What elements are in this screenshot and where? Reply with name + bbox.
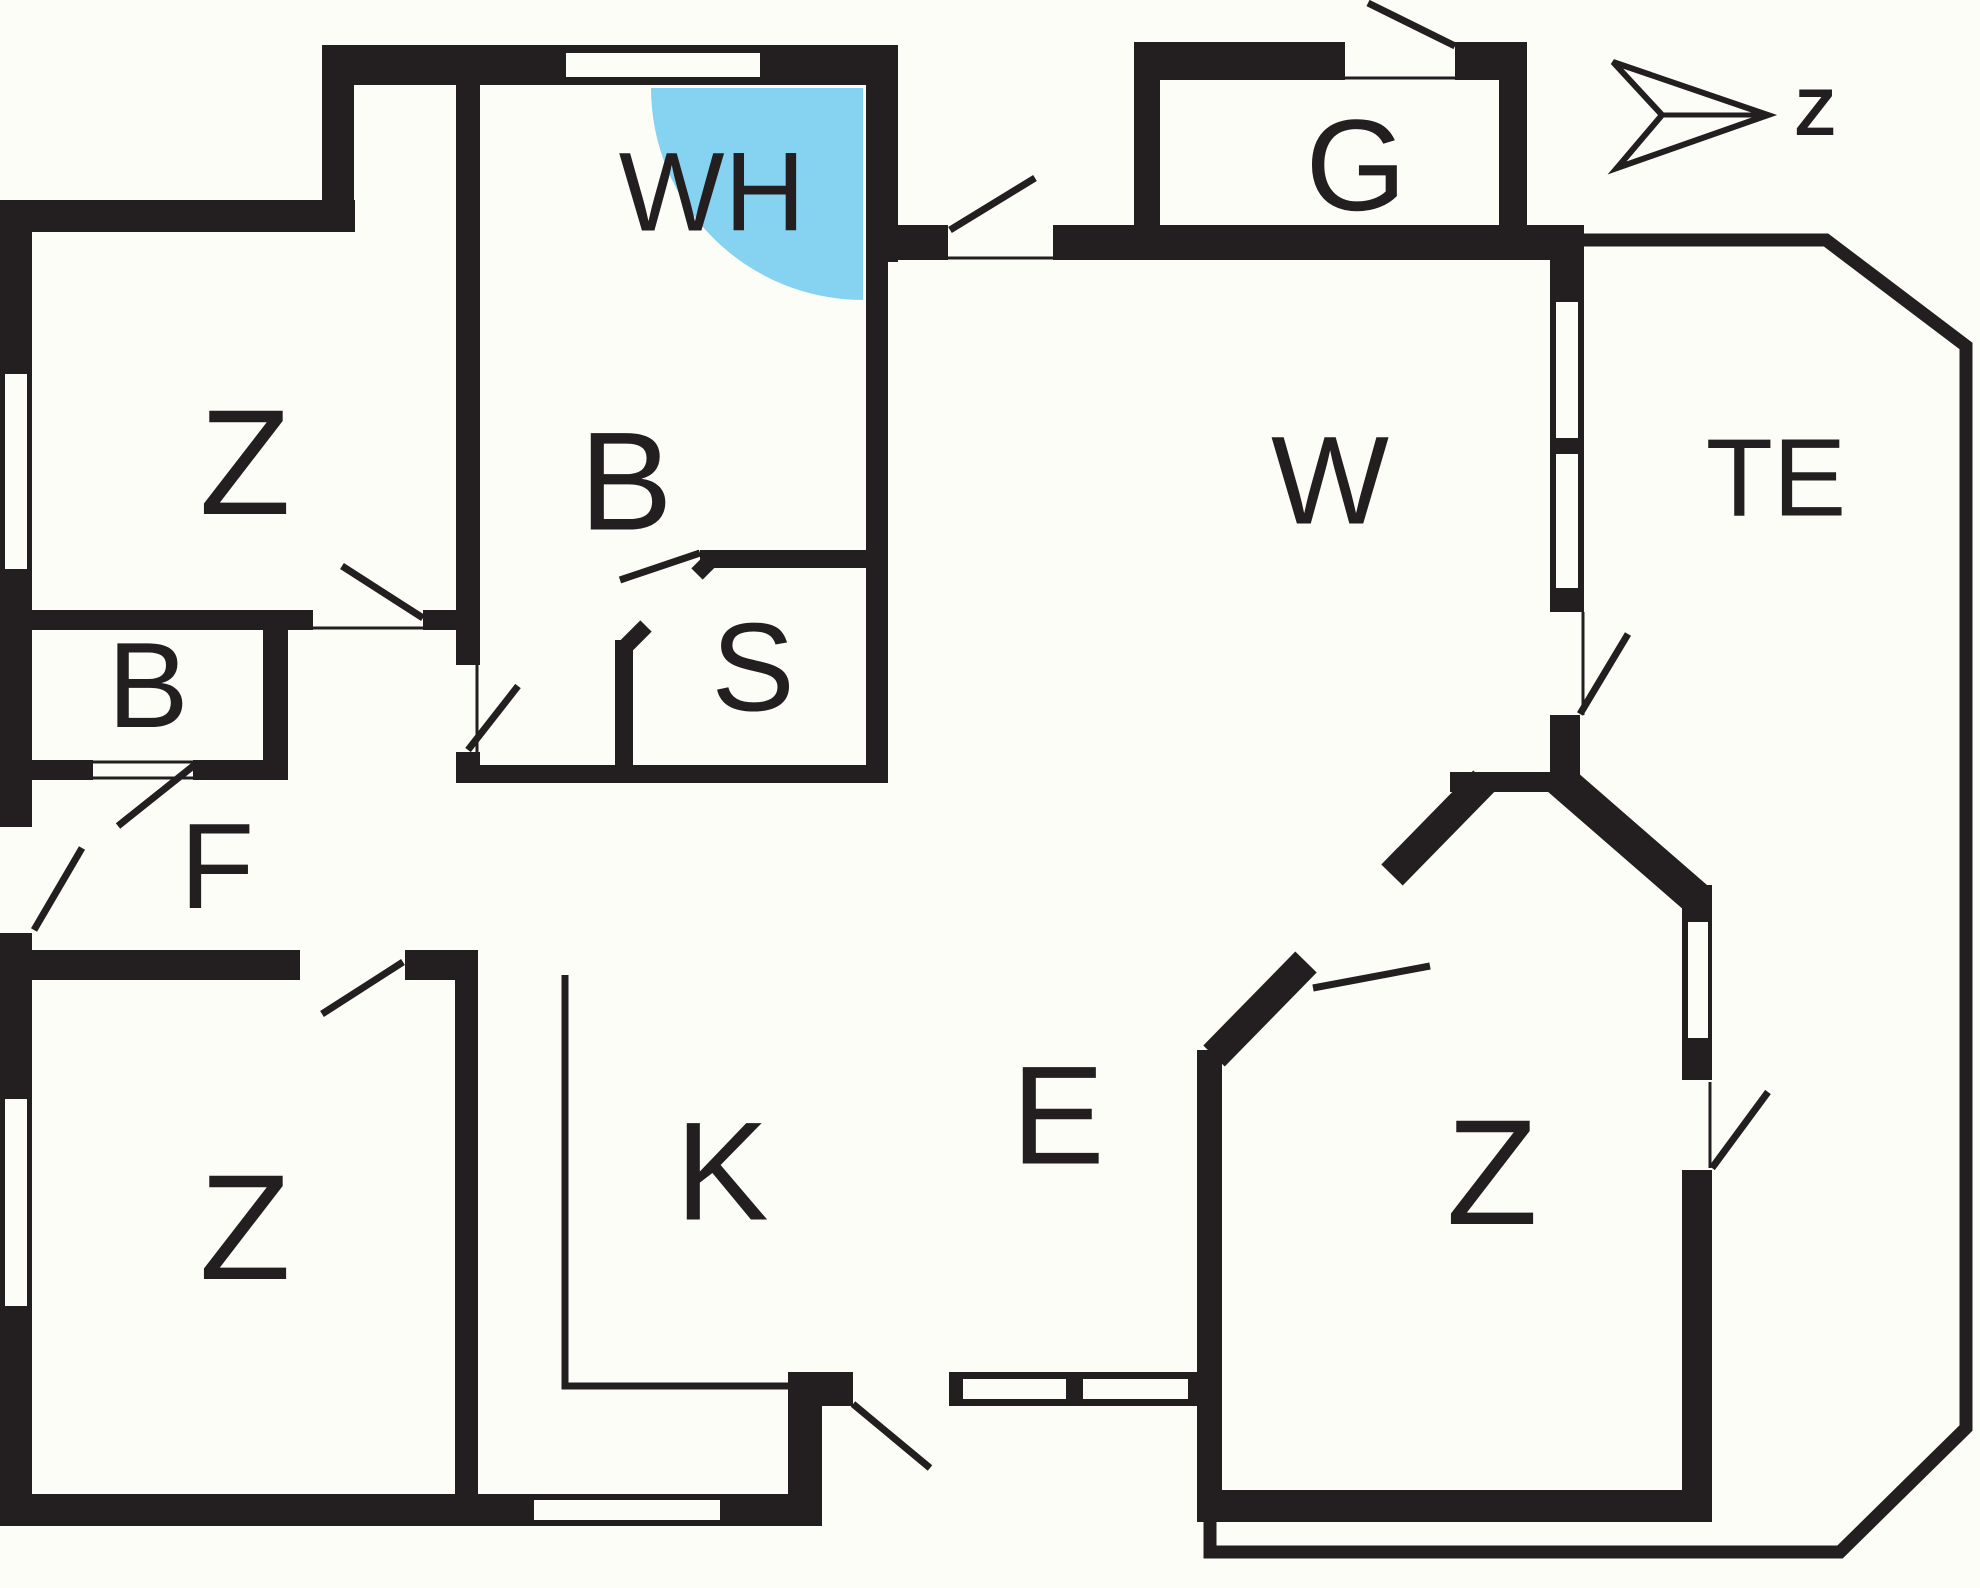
wall-segment [788, 1372, 853, 1406]
wall-segment [263, 630, 288, 780]
window [3, 372, 29, 571]
wall-segment [423, 610, 456, 630]
floor-plan: Z Z B WH S B F Z K E W G Z TE [0, 0, 1980, 1588]
wall-segment [866, 45, 898, 262]
compass-direction-label: Z [1795, 75, 1835, 149]
door-opening [300, 950, 405, 980]
door-opening [1682, 1080, 1712, 1170]
room-label-kitchen: K [675, 1093, 768, 1250]
room-label-sauna: S [711, 599, 794, 738]
room-label-bedroom-se: Z [1446, 1088, 1538, 1256]
room-label-bathroom: B [579, 403, 672, 560]
room-label-dining: E [1011, 1037, 1104, 1194]
wall-segment [456, 752, 480, 767]
window [961, 1377, 1068, 1401]
window [1686, 920, 1710, 1040]
room-label-wc: B [107, 617, 188, 753]
room-label-bedroom-sw: Z [199, 1143, 291, 1311]
wall-segment [615, 640, 633, 783]
floorplan-page: Z Z B WH S B F Z K E W G Z TE [0, 0, 1980, 1588]
wall-segment [866, 262, 888, 783]
wall-segment [455, 950, 478, 1526]
door-opening [0, 827, 32, 933]
window [564, 51, 762, 79]
wall-segment [1499, 42, 1527, 225]
wall-segment [1134, 42, 1527, 80]
wall-segment [32, 950, 300, 980]
room-label-bedroom-nw: Z [199, 378, 291, 546]
wall-segment [1197, 1490, 1712, 1522]
room-label-terrace: TE [1706, 417, 1847, 540]
room-label-shower: WH [619, 130, 806, 255]
window [3, 1097, 29, 1308]
window [1081, 1377, 1190, 1401]
door-opening [948, 225, 1053, 260]
door-opening [1345, 42, 1455, 80]
wall-segment [1197, 1050, 1222, 1495]
room-label-garage: G [1305, 92, 1406, 238]
window [1554, 300, 1580, 440]
room-label-living: W [1271, 412, 1389, 551]
wall-segment [456, 85, 480, 665]
window [532, 1498, 722, 1522]
wall-segment [456, 765, 888, 783]
room-label-hallway: F [180, 798, 255, 934]
window [1554, 452, 1580, 590]
wall-segment [1134, 42, 1160, 225]
wall-segment [700, 550, 866, 568]
wall-segment [0, 200, 355, 232]
